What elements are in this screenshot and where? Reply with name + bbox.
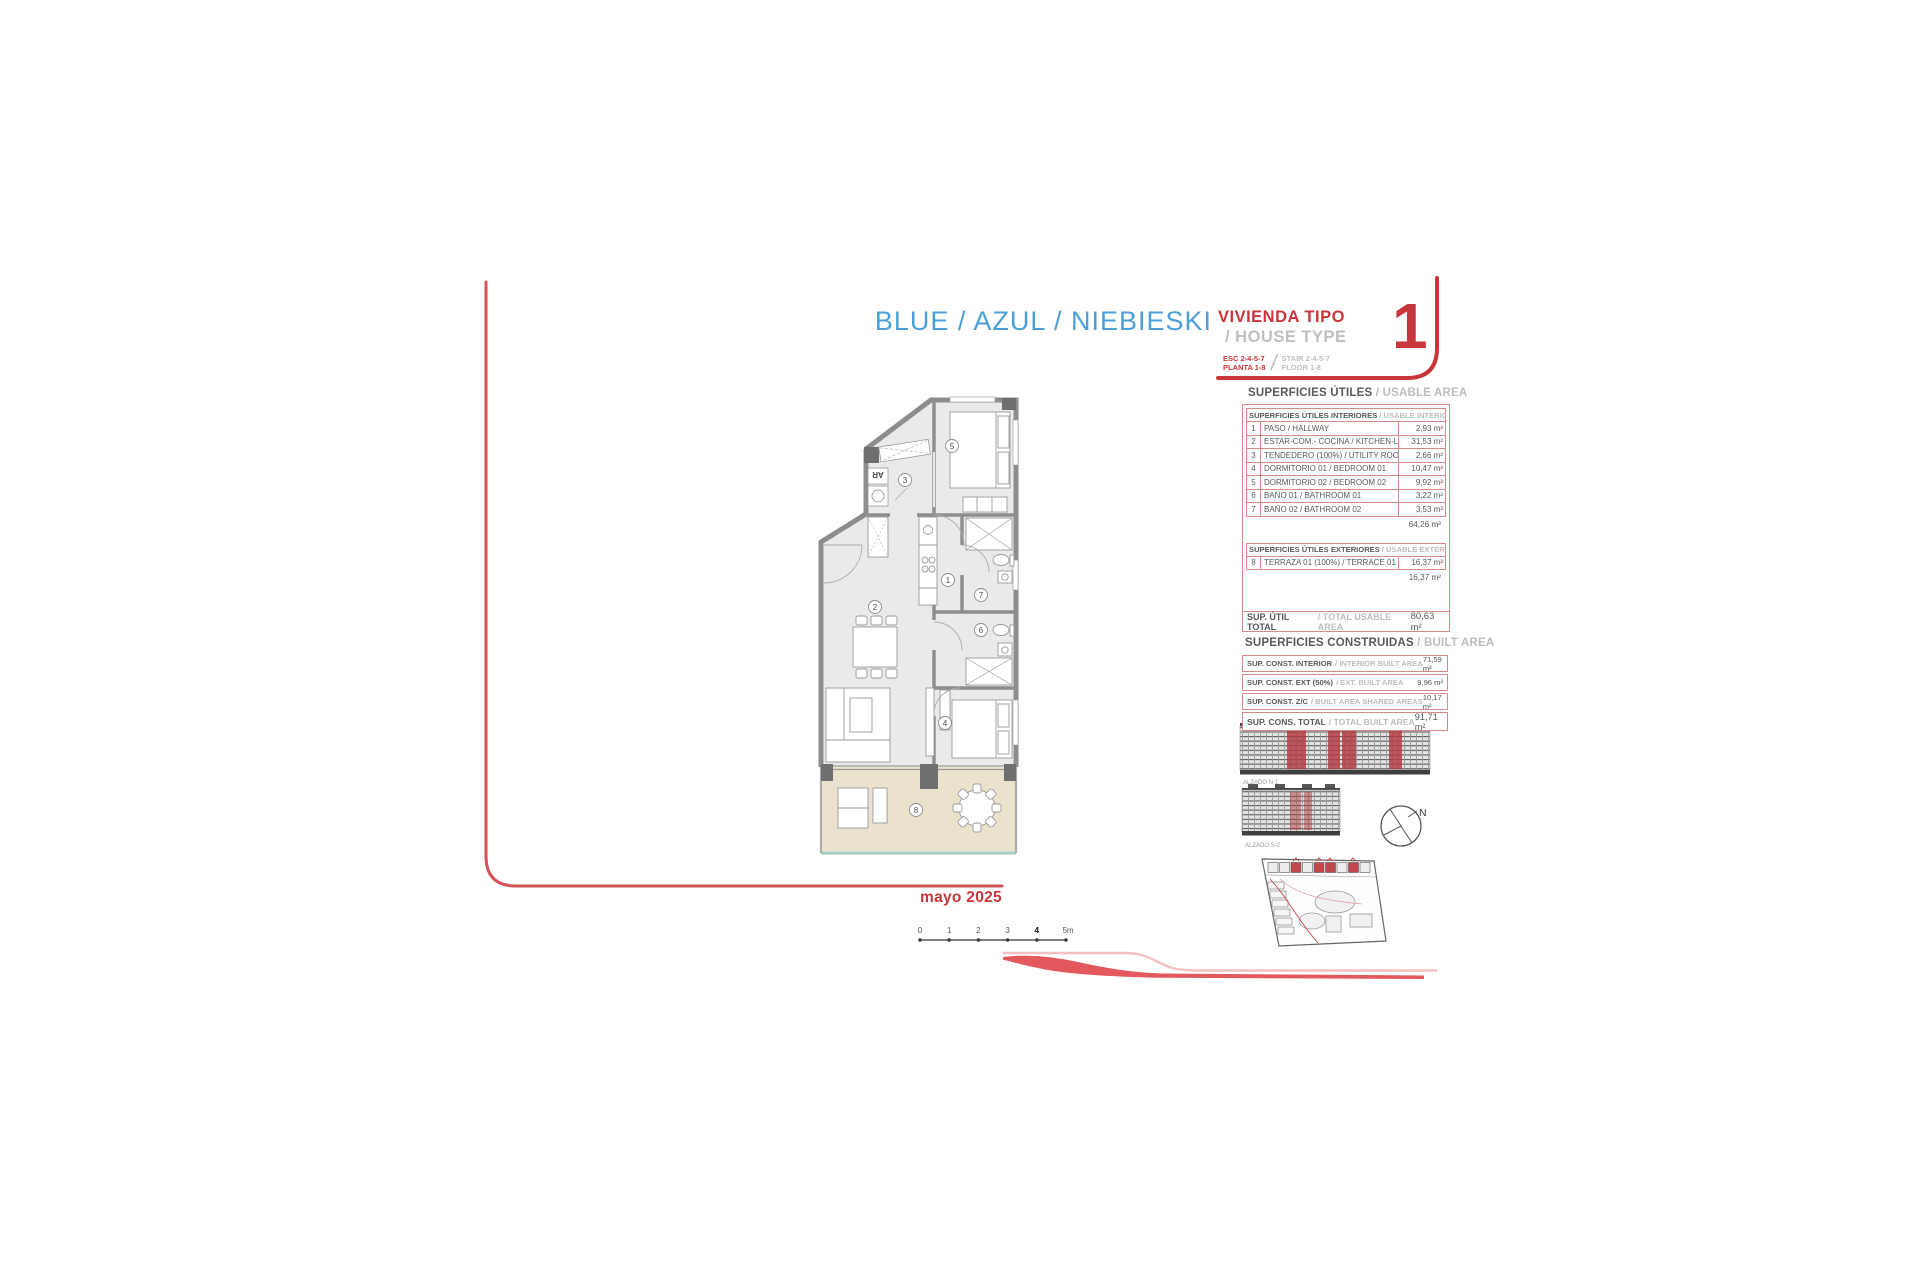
table-row: 7 BAÑO 02 / BATHROOM 02 3,53 m²	[1247, 502, 1445, 516]
row-num: 5	[1247, 476, 1261, 489]
built-heading-es: SUPERFICIES CONSTRUIDAS	[1245, 637, 1414, 649]
usable-area-table: SUPERFICIES ÚTILES INTERIORES / USABLE I…	[1242, 404, 1450, 632]
row-label: ESTAR-COM.- COCINA / KITCHEN-LIVING	[1261, 437, 1398, 446]
vivienda-tipo-label: VIVIENDA TIPO	[1218, 308, 1408, 327]
row-label: DORMITORIO 01 / BEDROOM 01	[1261, 464, 1398, 473]
fridge	[868, 517, 888, 557]
stair-floor-block: ESC 2-4-5-7 PLANTA 1-8 / STAIR 2-4-5-7 F…	[1223, 350, 1408, 376]
row-value: 2,66 m²	[1398, 449, 1445, 462]
interior-subheader-es: SUPERFICIES ÚTILES INTERIORES	[1249, 411, 1377, 420]
room-num-8: 8	[914, 806, 919, 815]
scale-tick-3: 3	[1005, 926, 1010, 935]
wardrobe-02	[963, 497, 1007, 512]
tv-sideboard	[926, 688, 934, 756]
row-value: 31,53 m²	[1398, 436, 1445, 449]
row-label-es: SUP. CONS. TOTAL	[1247, 717, 1326, 727]
scale-bar: 0 1 2 3 4 5m	[918, 925, 1074, 942]
table-row: SUP. CONST. INTERIOR / INTERIOR BUILT AR…	[1242, 655, 1448, 672]
row-num: 3	[1247, 449, 1261, 462]
bottom-swoosh-red	[1003, 956, 1424, 979]
stair-label: STAIR 2-4-5-7	[1282, 354, 1330, 363]
scale-tick-5: 5m	[1062, 926, 1073, 935]
hob	[922, 557, 928, 563]
row-num: 2	[1247, 436, 1261, 449]
exterior-subheader-en: / USABLE EXTERIOR AREA	[1382, 545, 1446, 554]
row-value: 71,59 m²	[1423, 655, 1443, 673]
utility-wall-block	[864, 447, 879, 463]
built-area-table: SUP. CONST. INTERIOR / INTERIOR BUILT AR…	[1242, 655, 1448, 733]
row-num: 7	[1247, 503, 1261, 516]
scale-tick-2: 2	[976, 926, 981, 935]
room-num-5: 5	[950, 442, 955, 451]
row-value: 16,37 m²	[1398, 557, 1445, 570]
pillow	[998, 416, 1009, 448]
table-row: 4 DORMITORIO 01 / BEDROOM 01 10,47 m²	[1247, 462, 1445, 476]
room-num-2: 2	[873, 603, 878, 612]
house-type-number: 1	[1392, 294, 1428, 358]
row-value: 9,96 m²	[1417, 678, 1443, 687]
row-label-es: SUP. CONST. Z/C	[1247, 697, 1308, 706]
row-label-en: / EXT. BUILT AREA	[1336, 678, 1404, 687]
row-num: 8	[1247, 557, 1261, 570]
floor-plan: AR	[821, 397, 1018, 855]
row-label: TERRAZA 01 (100%) / TERRACE 01	[1261, 558, 1398, 567]
row-label: BAÑO 01 / BATHROOM 01	[1261, 491, 1398, 500]
interior-rows: 1 PASO / HALLWAY 2,93 m² 2 ESTAR-COM.- C…	[1246, 422, 1446, 517]
usable-heading-en: / USABLE AREA	[1376, 387, 1468, 399]
compass: N	[1381, 806, 1427, 846]
esc-label: ESC 2-4-5-7	[1223, 354, 1266, 363]
washer	[868, 486, 888, 506]
room-num-1: 1	[946, 576, 951, 585]
usable-heading-es: SUPERFICIES ÚTILES	[1248, 387, 1372, 399]
table-row: 8 TERRAZA 01 (100%) / TERRACE 01 16,37 m…	[1247, 557, 1445, 570]
usable-total-es: SUP. ÚTIL TOTAL	[1247, 612, 1315, 632]
usable-total-en: / TOTAL USABLE AREA	[1318, 612, 1411, 632]
toilet-02	[993, 555, 1009, 566]
usable-total-value: 80,63 m²	[1411, 611, 1445, 633]
project-name: BLUE / AZUL / NIEBIESKI	[790, 306, 1212, 337]
stair-floor: STAIR 2-4-5-7 FLOOR 1-8	[1282, 354, 1330, 372]
row-label-es: SUP. CONST. EXT (50%)	[1247, 678, 1333, 687]
interior-subheader: SUPERFICIES ÚTILES INTERIORES / USABLE I…	[1246, 408, 1446, 422]
plan-sheet: AR	[0, 0, 1920, 1280]
site-blocks	[1268, 863, 1370, 873]
row-num: 4	[1247, 463, 1261, 476]
toilet-01	[993, 625, 1009, 636]
usable-total-row: SUP. ÚTIL TOTAL / TOTAL USABLE AREA 80,6…	[1243, 611, 1449, 631]
row-label: DORMITORIO 02 / BEDROOM 02	[1261, 478, 1398, 487]
elevation-south: ALZADO S-2	[1242, 784, 1340, 849]
scale-tick-4: 4	[1034, 925, 1039, 935]
table-row: 6 BAÑO 01 / BATHROOM 01 3,22 m²	[1247, 489, 1445, 503]
room-num-6: 6	[979, 626, 984, 635]
interior-subheader-en: / USABLE INTERIOR AREA	[1379, 411, 1446, 420]
corner-pillar	[1002, 398, 1016, 410]
table-row: SUP. CONS. TOTAL / TOTAL BUILT AREA 91,7…	[1242, 712, 1448, 731]
row-value: 3,53 m²	[1398, 503, 1445, 516]
scale-tick-1: 1	[947, 926, 952, 935]
table-row: 5 DORMITORIO 02 / BEDROOM 02 9,92 m²	[1247, 475, 1445, 489]
floor-label: FLOOR 1-8	[1282, 363, 1330, 372]
exterior-subtotal: 16,37 m²	[1246, 570, 1446, 582]
planta-label: PLANTA 1-8	[1223, 363, 1266, 372]
row-label: BAÑO 02 / BATHROOM 02	[1261, 505, 1398, 514]
date-label: mayo 2025	[905, 889, 1017, 907]
exterior-subheader: SUPERFICIES ÚTILES EXTERIORES / USABLE E…	[1246, 543, 1446, 557]
row-label-es: SUP. CONST. INTERIOR	[1247, 659, 1332, 668]
row-value: 9,92 m²	[1398, 476, 1445, 489]
exterior-subheader-es: SUPERFICIES ÚTILES EXTERIORES	[1249, 545, 1380, 554]
table-row: SUP. CONST. Z/C / BUILT AREA SHARED AREA…	[1242, 693, 1448, 710]
room-num-7: 7	[979, 591, 984, 600]
house-type-block: VIVIENDA TIPO / HOUSE TYPE ESC 2-4-5-7 P…	[1218, 308, 1408, 376]
row-num: 6	[1247, 490, 1261, 503]
table-row: 2 ESTAR-COM.- COCINA / KITCHEN-LIVING 31…	[1247, 435, 1445, 449]
built-heading-en: / BUILT AREA	[1417, 637, 1494, 649]
dining-table	[853, 627, 897, 667]
room-num-3: 3	[903, 476, 908, 485]
row-label-en: / BUILT AREA SHARED AREAS	[1311, 697, 1423, 706]
elevation-south-label: ALZADO S-2	[1245, 843, 1281, 849]
table-row: 1 PASO / HALLWAY 2,93 m²	[1247, 422, 1445, 435]
esc-planta: ESC 2-4-5-7 PLANTA 1-8	[1223, 354, 1266, 372]
site-plan	[1262, 858, 1386, 946]
drawing-layer: AR	[0, 0, 1920, 1280]
chair	[856, 616, 867, 625]
usable-area-heading: SUPERFICIES ÚTILES / USABLE AREA	[1248, 387, 1467, 399]
row-value: 91,71 m²	[1415, 712, 1443, 732]
scale-tick-0: 0	[918, 926, 923, 935]
kitchen-sink	[924, 526, 933, 535]
built-area-heading: SUPERFICIES CONSTRUIDAS / BUILT AREA	[1245, 637, 1494, 649]
row-num: 1	[1247, 422, 1261, 435]
row-value: 2,93 m²	[1398, 422, 1445, 435]
row-label: PASO / HALLWAY	[1261, 424, 1398, 433]
compass-n-label: N	[1419, 807, 1427, 819]
exterior-rows: 8 TERRAZA 01 (100%) / TERRACE 01 16,37 m…	[1246, 557, 1446, 571]
table-row: 3 TENDEDERO (100%) / UTILITY ROOM 2,66 m…	[1247, 448, 1445, 462]
row-value: 3,22 m²	[1398, 490, 1445, 503]
interior-subtotal: 64,26 m²	[1246, 517, 1446, 529]
row-value: 10,47 m²	[1398, 463, 1445, 476]
pillow	[998, 704, 1009, 727]
elevation-red-columns	[1290, 792, 1312, 830]
row-label-en: / INTERIOR BUILT AREA	[1335, 659, 1423, 668]
table-row: SUP. CONST. EXT (50%) / EXT. BUILT AREA …	[1242, 674, 1448, 691]
house-type-label: / HOUSE TYPE	[1225, 328, 1408, 347]
row-value: 10,17 m²	[1423, 693, 1443, 711]
row-label-en: / TOTAL BUILT AREA	[1329, 717, 1415, 727]
room-num-4: 4	[943, 719, 948, 728]
row-label: TENDEDERO (100%) / UTILITY ROOM	[1261, 451, 1398, 460]
divider-slash: /	[1269, 350, 1279, 376]
utility-label: AR	[872, 470, 884, 479]
